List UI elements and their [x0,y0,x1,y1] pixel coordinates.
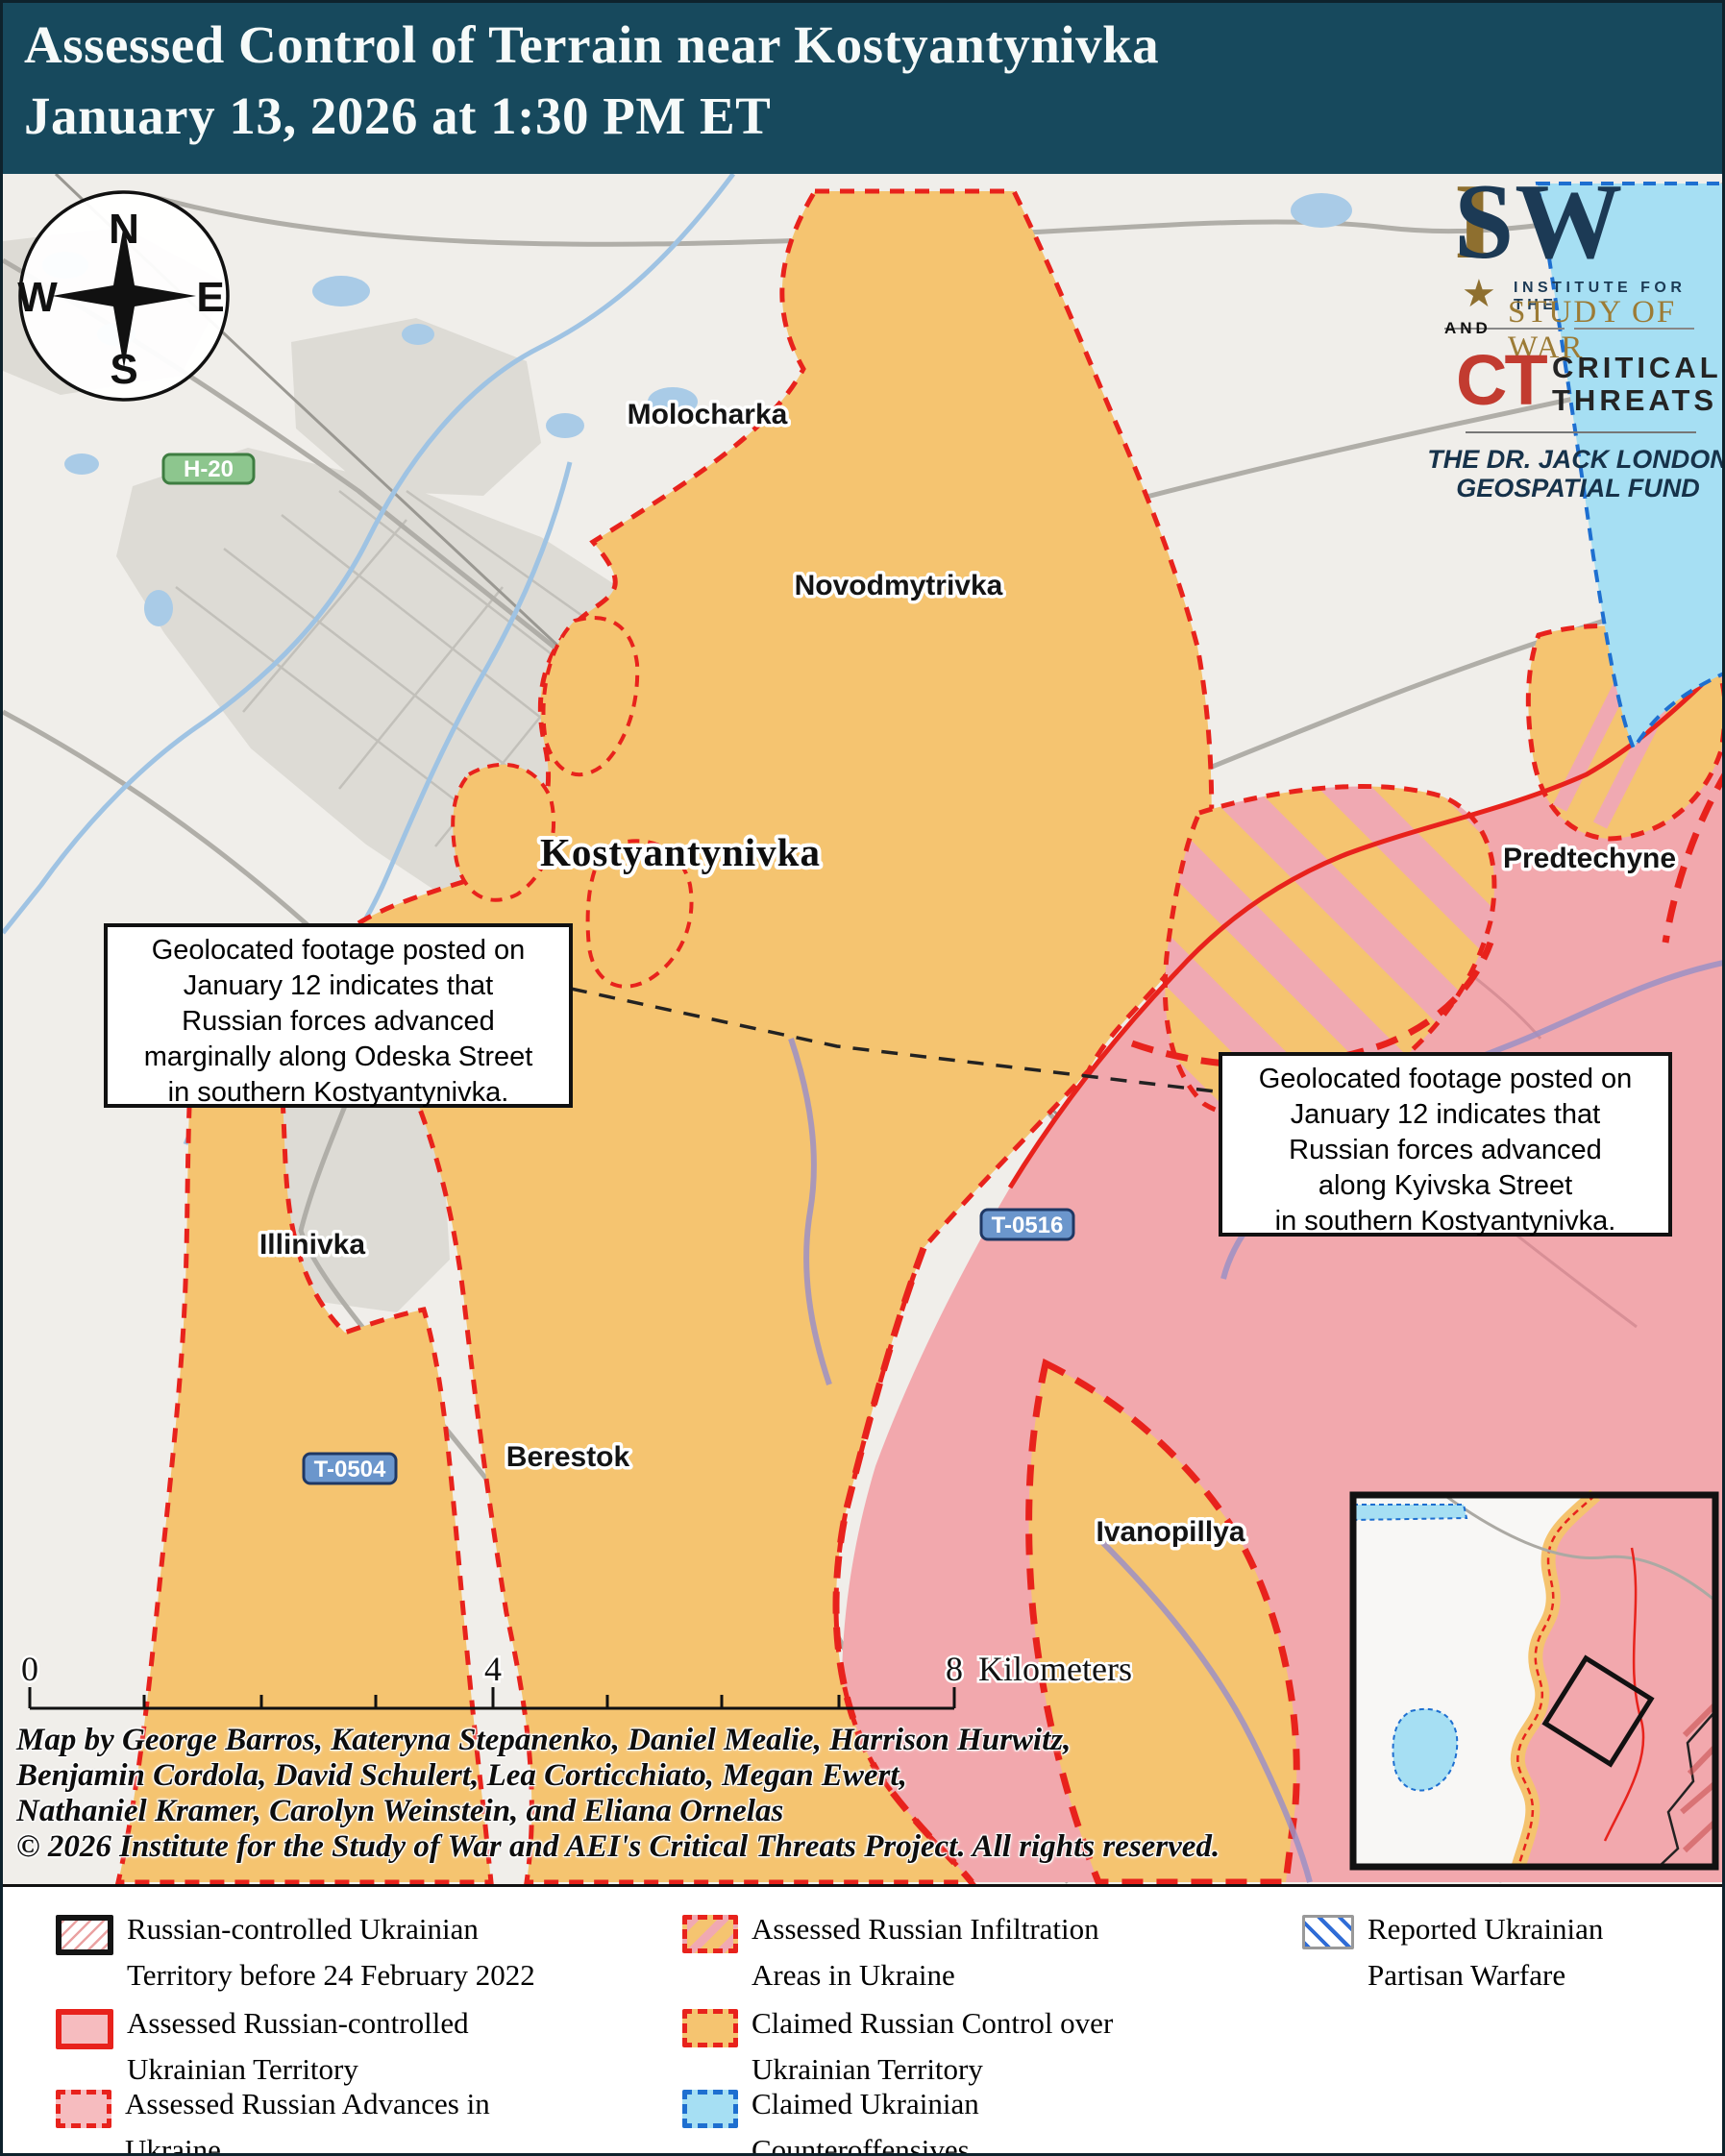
callout-kyivska-street: Geolocated footage posted on January 12 … [1219,1052,1672,1237]
legend-swatch-counteroffensives [682,2090,738,2128]
legend-item-assessed-control: Assessed Russian-controlled Ukrainian Te… [56,2000,623,2093]
legend-panel: Russian-controlled Ukrainian Territory b… [3,1884,1725,2156]
scale-eight: 8 [946,1650,963,1688]
compass-e: E [196,274,224,321]
place-label-illinivka: Illinivka [259,1229,365,1261]
road-shield-t0504: T-0504 [304,1454,396,1483]
legend-label-partisan: Reported Ukrainian Partisan Warfare [1368,1906,1603,1998]
callout-odeska-street: Geolocated footage posted on January 12 … [104,923,573,1108]
compass-rose: N S W E [17,192,228,400]
inset-map [1353,1495,1715,1867]
road-shield-t0516: T-0516 [981,1210,1073,1239]
scale-zero: 0 [21,1650,38,1688]
legend-label-infiltration: Assessed Russian Infiltration Areas in U… [752,1906,1099,1998]
credits-line4: © 2026 Institute for the Study of War an… [16,1829,1220,1865]
legend-label-advances: Assessed Russian Advances in Ukraine [125,2081,490,2156]
legend-label-prewar: Russian-controlled Ukrainian Territory b… [127,1906,535,1998]
legend-item-counteroffensives: Claimed Ukrainian Counteroffensives [682,2081,1249,2156]
credits-line2: Benjamin Cordola, David Schulert, Lea Co… [16,1758,1220,1794]
title-banner: Assessed Control of Terrain near Kostyan… [3,3,1725,174]
legend-swatch-claimed-control [682,2009,738,2047]
place-label-kostyantynivka: Kostyantynivka [540,830,821,874]
legend-item-partisan: Reported Ukrainian Partisan Warfare [1302,1906,1715,1998]
legend-label-counteroffensives: Claimed Ukrainian Counteroffensives [752,2081,979,2156]
legend-item-prewar: Russian-controlled Ukrainian Territory b… [56,1906,623,1998]
scale-unit: Kilometers [978,1650,1132,1688]
legend-swatch-advances [56,2090,111,2128]
map-canvas: N S W E H-20 T-0516 T-0504 Molocharka No… [3,174,1725,1884]
place-label-ivanopillya: Ivanopillya [1096,1516,1244,1548]
legend-item-infiltration: Assessed Russian Infiltration Areas in U… [682,1906,1249,1998]
map-title: Assessed Control of Terrain near Kostyan… [24,14,1159,75]
map-credits: Map by George Barros, Kateryna Stepanenk… [16,1723,1220,1865]
road-shield-h20: H-20 [163,454,254,483]
place-label-novodmytrivka: Novodmytrivka [795,570,1003,601]
compass-n: N [109,206,139,253]
compass-s: S [110,346,137,393]
place-label-molocharka: Molocharka [628,399,788,430]
scale-four: 4 [484,1650,502,1688]
isw-map-page: Assessed Control of Terrain near Kostyan… [0,0,1725,2156]
map-date: January 13, 2026 at 1:30 PM ET [24,86,771,146]
credits-line3: Nathaniel Kramer, Carolyn Weinstein, and… [16,1794,1220,1829]
road-shield-h20-label: H-20 [184,456,234,482]
place-label-berestok: Berestok [506,1441,630,1473]
legend-label-claimed-control: Claimed Russian Control over Ukrainian T… [752,2000,1113,2093]
legend-label-assessed-control: Assessed Russian-controlled Ukrainian Te… [127,2000,469,2093]
compass-w: W [17,274,58,321]
legend-swatch-prewar [56,1915,113,1955]
legend-item-advances: Assessed Russian Advances in Ukraine [56,2081,623,2156]
legend-swatch-assessed-control [56,2009,113,2049]
place-label-predtechyne: Predtechyne [1503,843,1676,874]
road-shield-t0504-label: T-0504 [314,1457,386,1482]
credits-line1: Map by George Barros, Kateryna Stepanenk… [16,1723,1220,1758]
legend-swatch-partisan [1302,1915,1354,1949]
road-shield-t0516-label: T-0516 [992,1213,1064,1238]
legend-swatch-infiltration [682,1915,738,1953]
legend-item-claimed-control: Claimed Russian Control over Ukrainian T… [682,2000,1249,2093]
